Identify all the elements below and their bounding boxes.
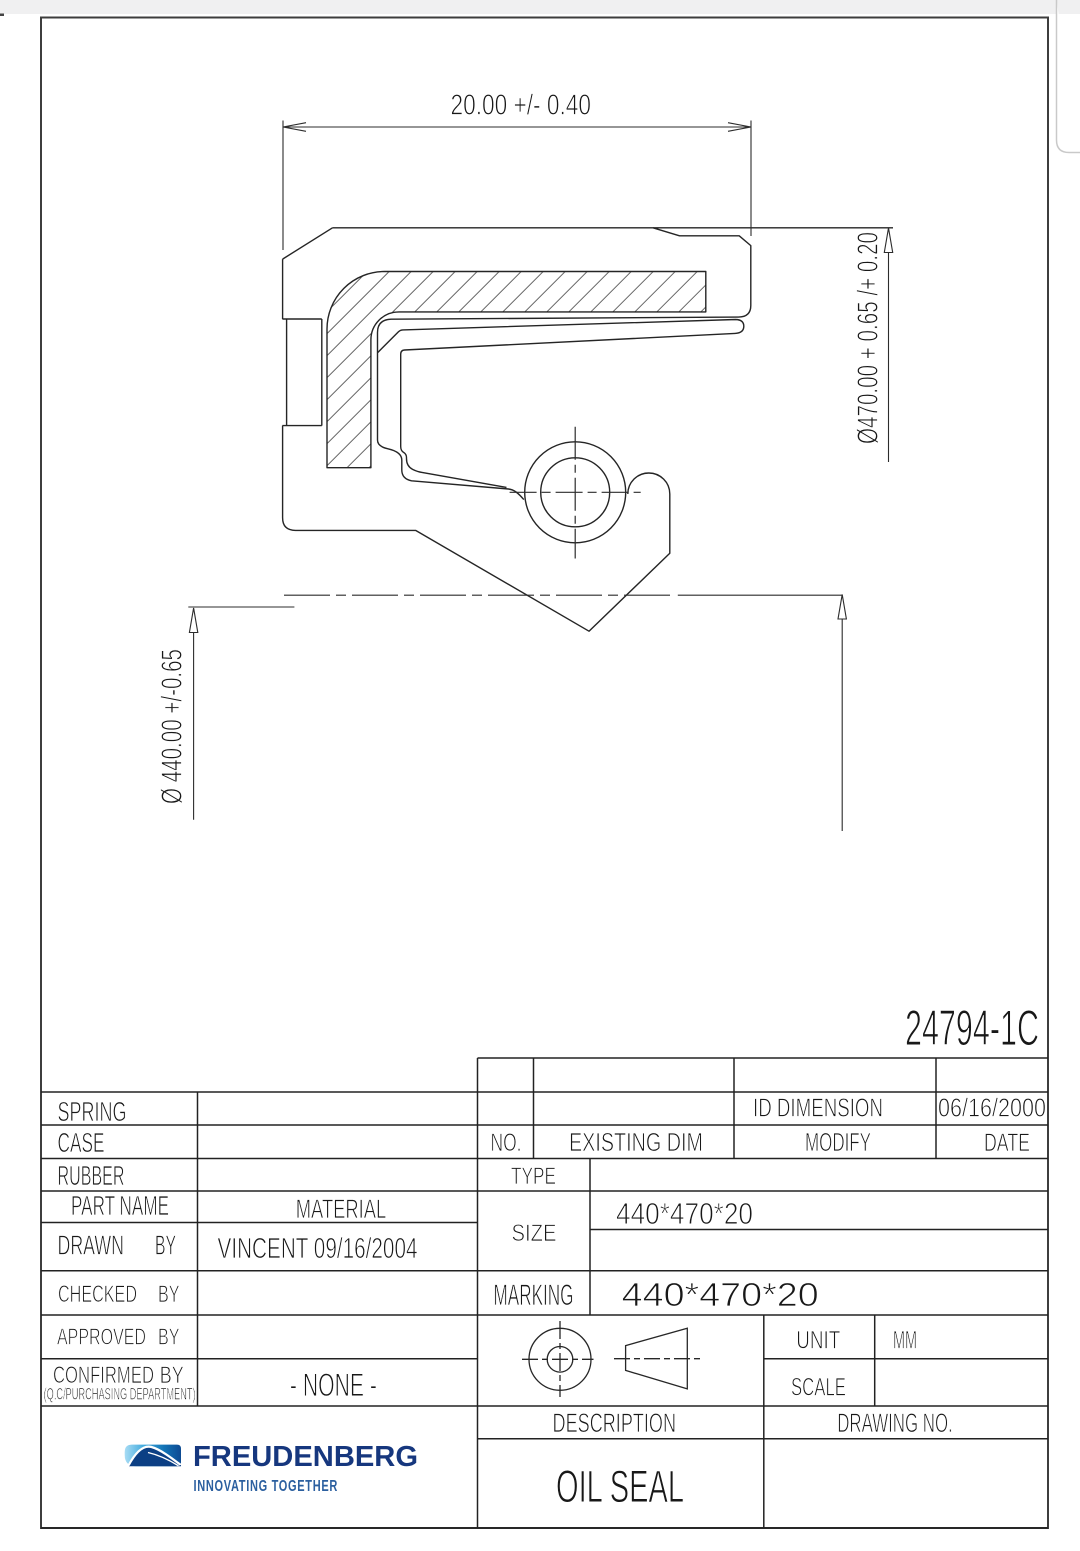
svg-text:APPROVED: APPROVED (57, 1324, 146, 1350)
svg-text:440*470*20: 440*470*20 (622, 1276, 819, 1313)
svg-text:TYPE: TYPE (511, 1163, 556, 1190)
svg-text:UNIT: UNIT (796, 1327, 840, 1355)
svg-text:EXISTING DIM: EXISTING DIM (569, 1127, 703, 1157)
svg-text:ID DIMENSION: ID DIMENSION (753, 1093, 883, 1123)
svg-text:OIL SEAL: OIL SEAL (556, 1461, 684, 1512)
svg-text:MATERIAL: MATERIAL (296, 1194, 387, 1224)
svg-text:(Q.C/PURCHASING DEPARTMENT): (Q.C/PURCHASING DEPARTMENT) (44, 1386, 196, 1404)
svg-text:MM: MM (893, 1326, 917, 1354)
svg-text:20.00 +/- 0.40: 20.00 +/- 0.40 (451, 89, 592, 121)
svg-text:CASE: CASE (58, 1127, 105, 1158)
svg-text:MODIFY: MODIFY (805, 1127, 871, 1157)
svg-text:DRAWN: DRAWN (58, 1230, 125, 1261)
svg-text:DRAWING NO.: DRAWING NO. (837, 1408, 953, 1438)
svg-text:NO.: NO. (491, 1129, 522, 1157)
svg-text:VINCENT 09/16/2004: VINCENT 09/16/2004 (218, 1233, 418, 1265)
svg-text:DATE: DATE (984, 1129, 1030, 1157)
svg-text:Ø470.00 + 0.65 /+ 0.20: Ø470.00 + 0.65 /+ 0.20 (853, 232, 885, 444)
svg-text:MARKING: MARKING (494, 1279, 574, 1312)
svg-text:SCALE: SCALE (791, 1374, 846, 1402)
svg-text:FREUDENBERG: FREUDENBERG (193, 1441, 418, 1473)
svg-text:Ø 440.00 +/-0.65: Ø 440.00 +/-0.65 (157, 649, 189, 804)
svg-text:CHECKED: CHECKED (58, 1281, 137, 1308)
svg-text:BY: BY (158, 1324, 180, 1350)
svg-text:BY: BY (158, 1281, 180, 1308)
svg-text:SPRING: SPRING (58, 1096, 127, 1127)
svg-text:PART NAME: PART NAME (71, 1190, 169, 1221)
svg-text:440*470*20: 440*470*20 (616, 1196, 753, 1231)
svg-text:- NONE -: - NONE - (290, 1367, 377, 1403)
svg-text:BY: BY (155, 1230, 176, 1261)
svg-text:24794-1C: 24794-1C (905, 1000, 1039, 1056)
svg-text:06/16/2000: 06/16/2000 (938, 1093, 1046, 1123)
svg-text:SIZE: SIZE (512, 1220, 557, 1247)
svg-text:DESCRIPTION: DESCRIPTION (553, 1408, 677, 1438)
svg-text:RUBBER: RUBBER (58, 1160, 125, 1191)
svg-text:INNOVATING TOGETHER: INNOVATING TOGETHER (194, 1478, 339, 1495)
